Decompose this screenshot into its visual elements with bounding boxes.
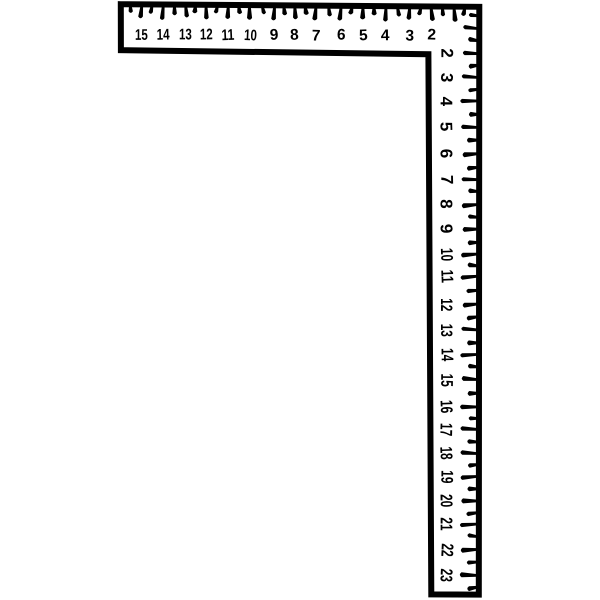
- svg-text:16: 16: [436, 400, 456, 414]
- svg-text:5: 5: [359, 27, 369, 44]
- svg-text:18: 18: [436, 446, 456, 460]
- svg-text:6: 6: [437, 149, 456, 159]
- svg-text:9: 9: [436, 224, 455, 234]
- svg-text:4: 4: [437, 97, 456, 107]
- svg-text:4: 4: [381, 27, 390, 44]
- svg-text:5: 5: [436, 121, 455, 131]
- svg-text:7: 7: [311, 27, 320, 44]
- svg-text:11: 11: [437, 269, 457, 283]
- svg-text:23: 23: [436, 568, 456, 582]
- svg-text:12: 12: [437, 298, 456, 311]
- svg-text:12: 12: [200, 26, 213, 43]
- svg-text:15: 15: [135, 27, 148, 44]
- svg-text:14: 14: [157, 26, 170, 43]
- svg-text:7: 7: [437, 175, 456, 185]
- svg-text:11: 11: [221, 27, 235, 45]
- svg-text:20: 20: [437, 494, 456, 508]
- svg-text:14: 14: [437, 348, 456, 362]
- svg-text:8: 8: [437, 199, 456, 209]
- svg-text:9: 9: [269, 26, 279, 43]
- svg-text:2: 2: [437, 48, 456, 58]
- svg-text:15: 15: [437, 373, 456, 386]
- svg-text:10: 10: [437, 248, 456, 262]
- svg-text:2: 2: [427, 26, 436, 43]
- svg-text:21: 21: [437, 517, 456, 530]
- svg-text:22: 22: [437, 543, 457, 557]
- svg-text:8: 8: [290, 27, 300, 44]
- svg-text:13: 13: [179, 26, 192, 43]
- svg-text:6: 6: [337, 26, 347, 43]
- svg-text:17: 17: [436, 423, 455, 437]
- svg-text:3: 3: [405, 27, 414, 44]
- svg-text:19: 19: [437, 470, 456, 484]
- svg-text:3: 3: [437, 72, 456, 82]
- svg-text:13: 13: [437, 324, 456, 337]
- svg-text:10: 10: [244, 27, 258, 45]
